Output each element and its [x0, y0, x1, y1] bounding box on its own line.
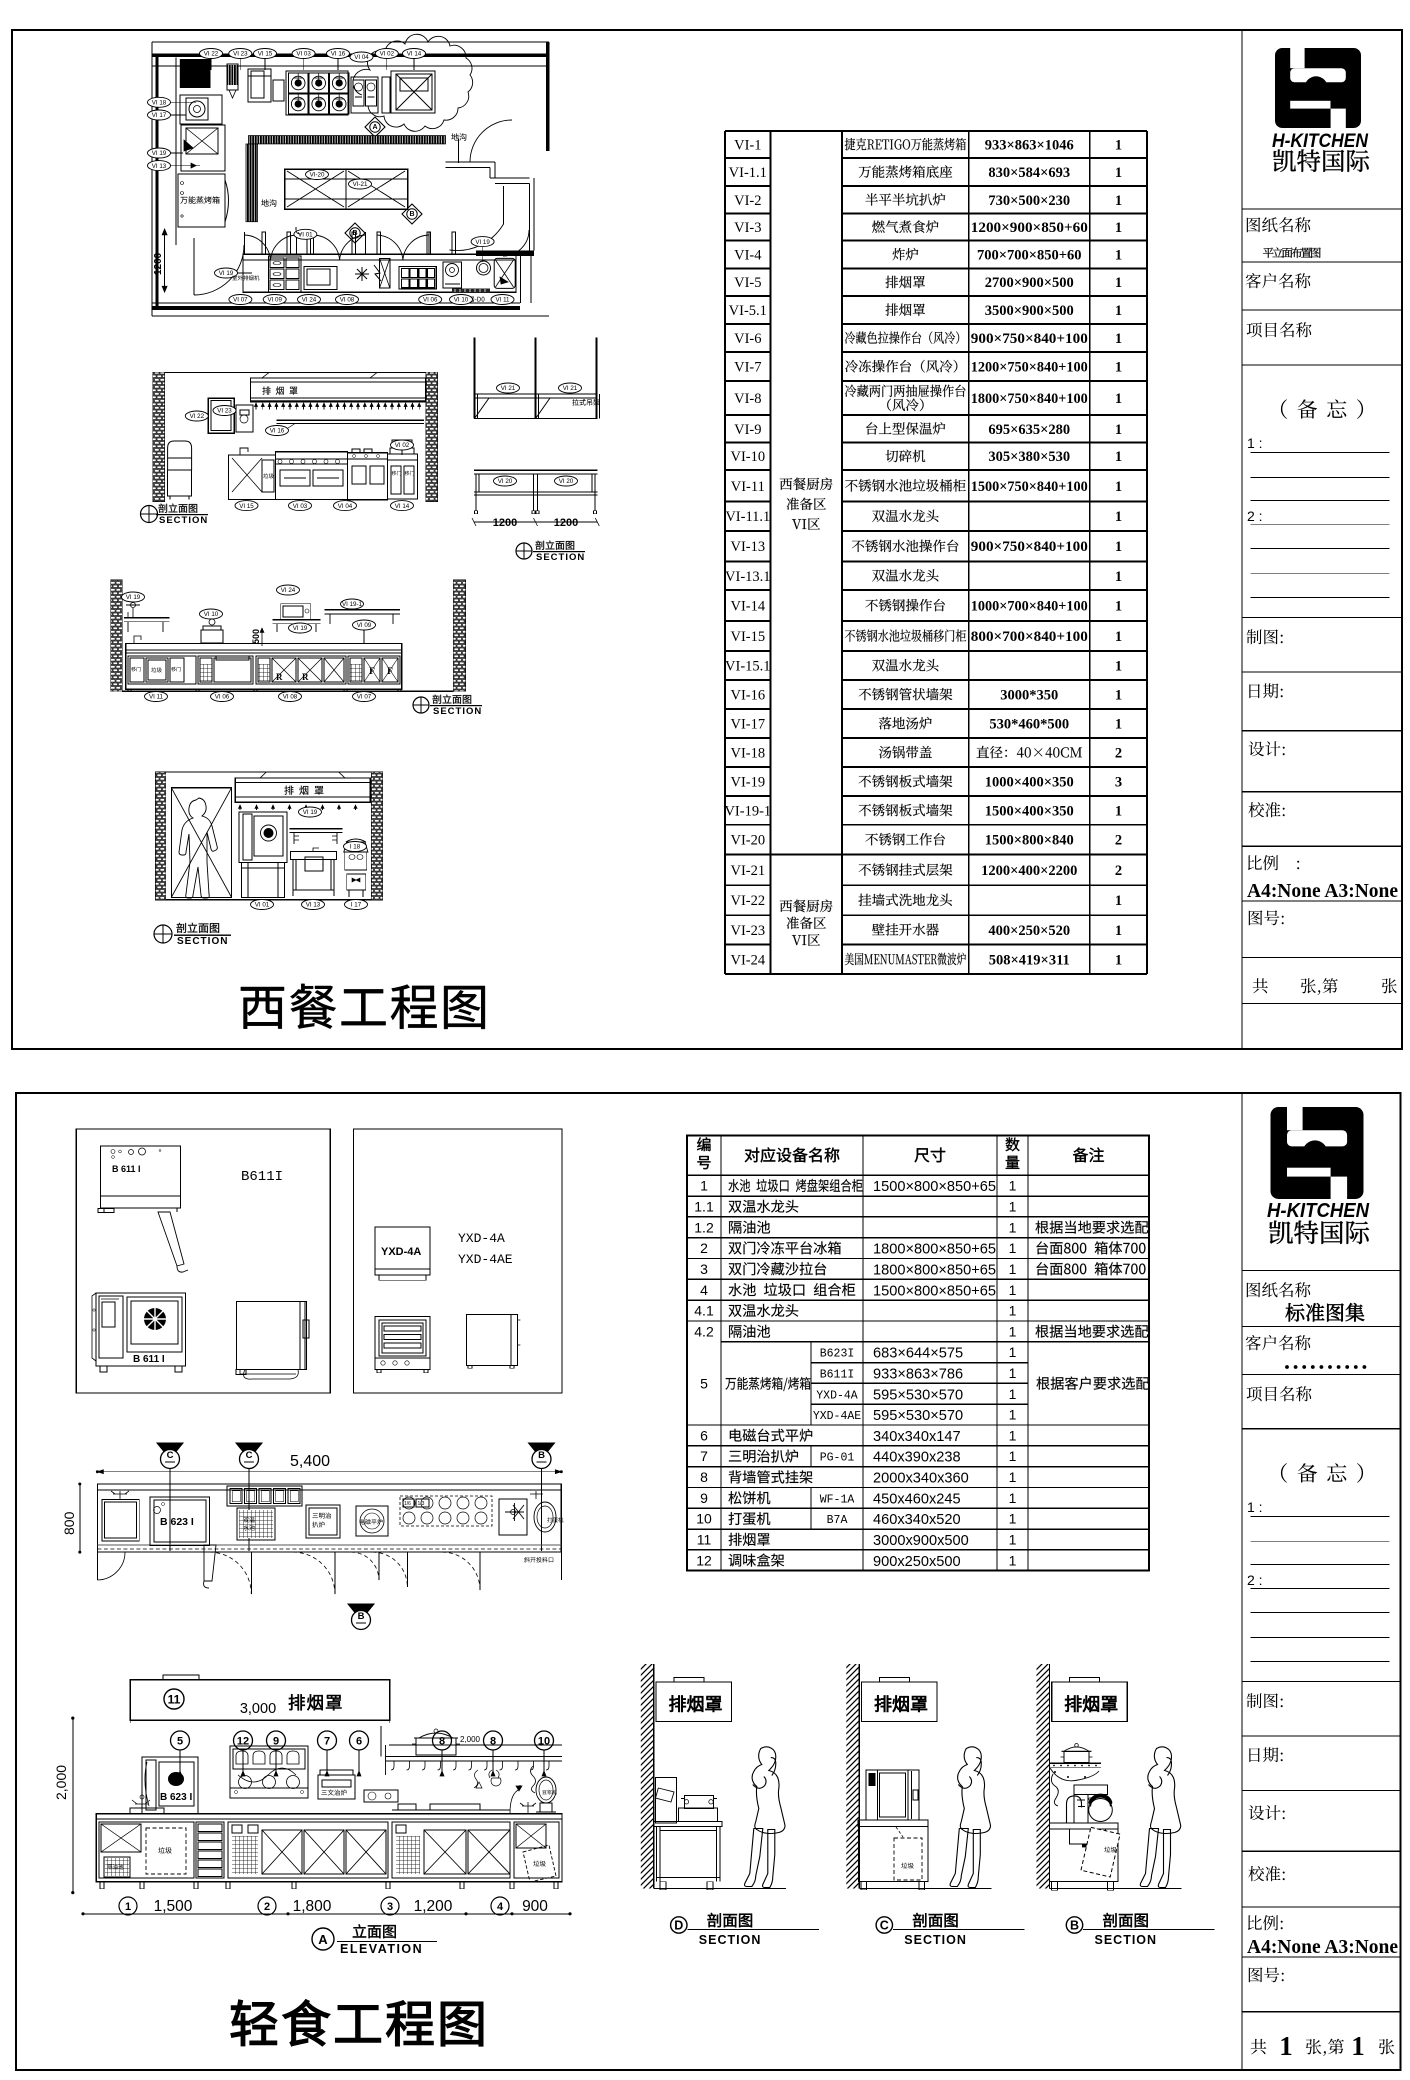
svg-text:1500×800×840: 1500×800×840	[985, 833, 1074, 849]
svg-text:VI 20: VI 20	[559, 478, 574, 485]
svg-text:VI 19: VI 19	[293, 625, 308, 632]
svg-text:VI 08: VI 08	[283, 694, 298, 701]
svg-text:VI-16: VI-16	[730, 688, 765, 704]
svg-text:VI-15.1: VI-15.1	[725, 659, 771, 675]
svg-text:VI 09: VI 09	[357, 622, 372, 629]
svg-text:1500×800×850+65: 1500×800×850+65	[873, 1179, 996, 1195]
svg-text:1: 1	[1009, 1282, 1017, 1298]
svg-text:B623I: B623I	[820, 1348, 855, 1361]
svg-text:VI-22: VI-22	[730, 893, 765, 909]
svg-text:VI 01: VI 01	[298, 232, 313, 239]
svg-text:VI 09: VI 09	[267, 297, 282, 304]
svg-text:1/6: 1/6	[404, 1501, 411, 1507]
svg-text:VI 07: VI 07	[357, 694, 372, 701]
svg-text:1: 1	[1115, 275, 1122, 291]
svg-text:700×700×850+60: 700×700×850+60	[977, 248, 1082, 264]
svg-text:4: 4	[700, 1282, 708, 1298]
svg-text:YXD-4AE: YXD-4AE	[458, 1252, 513, 1267]
svg-text:1: 1	[1009, 1344, 1017, 1360]
svg-text:3: 3	[387, 1901, 393, 1913]
svg-text:1: 1	[1009, 1490, 1017, 1506]
svg-text:VI-9: VI-9	[734, 422, 761, 438]
svg-text:D: D	[674, 1919, 683, 1933]
svg-text:4.1: 4.1	[694, 1303, 714, 1319]
svg-text:1: 1	[1009, 1552, 1017, 1568]
svg-text:VI 19: VI 19	[219, 270, 234, 277]
svg-text:VI-17: VI-17	[730, 717, 765, 733]
svg-text:2000x340x360: 2000x340x360	[873, 1471, 969, 1487]
svg-text:VI 04: VI 04	[338, 503, 353, 510]
svg-text:3: 3	[1115, 775, 1122, 791]
svg-text:3000x900x500: 3000x900x500	[873, 1533, 969, 1549]
svg-text:1200: 1200	[493, 517, 517, 529]
svg-text:440x390x238: 440x390x238	[873, 1450, 961, 1466]
svg-text:B: B	[538, 1450, 545, 1461]
svg-text:3,000: 3,000	[240, 1701, 276, 1717]
svg-text:1: 1	[1115, 331, 1122, 347]
svg-text:1: 1	[1009, 1178, 1017, 1194]
svg-text:1500×750×840+100: 1500×750×840+100	[971, 479, 1088, 495]
svg-text:VI-20: VI-20	[730, 833, 765, 849]
svg-text:2: 2	[700, 1240, 708, 1256]
svg-text:SECTION: SECTION	[159, 515, 208, 526]
svg-text:VI 24: VI 24	[281, 587, 296, 594]
svg-text:R: R	[276, 672, 283, 682]
svg-text:6: 6	[700, 1427, 708, 1443]
svg-text:1,200: 1,200	[414, 1898, 453, 1915]
svg-text:VI 01: VI 01	[255, 902, 270, 909]
svg-text:508×419×311: 508×419×311	[989, 952, 1070, 968]
svg-text:933×863×1046: 933×863×1046	[985, 138, 1074, 154]
svg-text:VI-4: VI-4	[734, 248, 762, 264]
svg-text:830×584×693: 830×584×693	[988, 165, 1070, 181]
svg-text:1: 1	[1115, 303, 1122, 319]
svg-text:VI-2: VI-2	[734, 193, 761, 209]
svg-text:B 623 I: B 623 I	[160, 1792, 192, 1803]
svg-text:5: 5	[700, 1375, 708, 1391]
svg-text:VI-21: VI-21	[730, 863, 765, 879]
svg-text:VI-11.1: VI-11.1	[725, 509, 770, 525]
svg-text:VI-7: VI-7	[734, 360, 761, 376]
svg-text:SECTION: SECTION	[699, 1933, 762, 1947]
svg-text:VI-13: VI-13	[730, 539, 765, 555]
svg-text:VI 18: VI 18	[152, 100, 167, 107]
svg-text:1: 1	[1009, 1365, 1017, 1381]
svg-text:1: 1	[1115, 659, 1122, 675]
svg-text:VI 23: VI 23	[217, 408, 232, 415]
svg-text:1: 1	[1279, 2031, 1293, 2061]
svg-text:VI 19-1: VI 19-1	[342, 601, 363, 608]
svg-text:VI 10: VI 10	[454, 297, 469, 304]
svg-text:VI-10: VI-10	[730, 449, 765, 465]
svg-text:1: 1	[1009, 1303, 1017, 1319]
svg-text:VI-19-1: VI-19-1	[724, 803, 771, 819]
svg-text:H-KITCHEN: H-KITCHEN	[1272, 131, 1369, 152]
svg-text:530*460*500: 530*460*500	[989, 717, 1069, 733]
svg-text:SECTION: SECTION	[904, 1933, 967, 1947]
svg-text:695×635×280: 695×635×280	[988, 422, 1070, 438]
svg-text:VI-24: VI-24	[730, 952, 765, 968]
svg-text:2: 2	[1115, 863, 1122, 879]
svg-text:1200×900×850+60: 1200×900×850+60	[971, 220, 1088, 236]
svg-text:1: 1	[1115, 599, 1122, 615]
svg-text:1: 1	[1115, 360, 1122, 376]
svg-text:A: A	[372, 124, 377, 131]
svg-text:VI-19: VI-19	[730, 775, 765, 791]
svg-text:1,800: 1,800	[293, 1898, 332, 1915]
svg-text:VI 07: VI 07	[233, 297, 248, 304]
svg-text:1000×400×350: 1000×400×350	[985, 775, 1074, 791]
svg-text:1: 1	[1115, 509, 1122, 525]
svg-text:5: 5	[177, 1736, 183, 1748]
svg-text:595×530×570: 595×530×570	[873, 1408, 963, 1424]
svg-text:VI 14: VI 14	[407, 51, 422, 58]
svg-text:VI 22: VI 22	[204, 51, 219, 58]
svg-text:1: 1	[1115, 391, 1122, 407]
svg-text:VI 10: VI 10	[204, 611, 219, 618]
svg-text:1200: 1200	[554, 517, 578, 529]
svg-text:F: F	[369, 667, 375, 677]
svg-text:B 623 I: B 623 I	[160, 1516, 194, 1528]
svg-text:VI 13: VI 13	[306, 902, 321, 909]
svg-text:1000×700×840+100: 1000×700×840+100	[971, 599, 1088, 615]
svg-text:7: 7	[700, 1448, 708, 1464]
svg-text:VI-8: VI-8	[734, 391, 761, 407]
svg-text:1200×750×840+100: 1200×750×840+100	[971, 360, 1088, 376]
svg-text:1: 1	[1115, 479, 1122, 495]
svg-text:ELEVATION: ELEVATION	[340, 1942, 423, 1956]
svg-text:VI 23: VI 23	[233, 51, 248, 58]
svg-text:11: 11	[697, 1532, 712, 1548]
svg-text:VI 03: VI 03	[293, 503, 308, 510]
svg-text:B611I: B611I	[241, 1169, 283, 1185]
svg-text:VI-14: VI-14	[730, 599, 765, 615]
svg-text:8: 8	[490, 1736, 496, 1748]
svg-text:3000*350: 3000*350	[1000, 688, 1058, 704]
svg-text:SECTION: SECTION	[536, 552, 585, 563]
svg-text:YXD-4A: YXD-4A	[381, 1246, 421, 1258]
svg-text:1: 1	[1115, 193, 1122, 209]
svg-text:C: C	[246, 1450, 253, 1461]
svg-text:1: 1	[1009, 1240, 1017, 1256]
svg-text:1500×400×350: 1500×400×350	[985, 803, 1074, 819]
svg-text:VI-13.1: VI-13.1	[725, 569, 771, 585]
svg-text:1/3: 1/3	[418, 1501, 425, 1507]
svg-text:1.2: 1.2	[694, 1219, 714, 1235]
svg-text:VI-21: VI-21	[353, 181, 368, 188]
svg-text:I 17: I 17	[351, 902, 362, 909]
svg-text:2: 2	[1115, 746, 1122, 762]
svg-text:1: 1	[1009, 1323, 1017, 1339]
svg-text:1: 1	[1009, 1386, 1017, 1402]
svg-text:VI 19: VI 19	[475, 239, 490, 246]
svg-text:500: 500	[251, 629, 261, 644]
svg-text:1: 1	[1009, 1219, 1017, 1235]
svg-text:PG-01: PG-01	[820, 1452, 855, 1465]
svg-text:SECTION: SECTION	[177, 936, 228, 947]
svg-text:VI-3: VI-3	[734, 220, 761, 236]
svg-text:1,500: 1,500	[154, 1898, 193, 1915]
svg-text:1: 1	[125, 1901, 131, 1913]
svg-text:2 :: 2 :	[1247, 508, 1263, 524]
svg-text:4.2: 4.2	[694, 1323, 714, 1339]
svg-text:1: 1	[1351, 2031, 1365, 2061]
svg-text:1: 1	[1115, 449, 1122, 465]
svg-text:1: 1	[1009, 1511, 1017, 1527]
svg-text:VI 06: VI 06	[215, 694, 230, 701]
svg-text:SECTION: SECTION	[1095, 1933, 1158, 1947]
svg-text:1200×400×2200: 1200×400×2200	[981, 863, 1077, 879]
svg-text:VI-11: VI-11	[731, 479, 765, 495]
svg-text:VI 19: VI 19	[303, 809, 318, 816]
svg-text:R: R	[302, 672, 309, 682]
svg-text:VI-1: VI-1	[734, 138, 761, 154]
svg-text:1: 1	[1115, 569, 1122, 585]
svg-text:10: 10	[538, 1736, 550, 1748]
svg-text:4: 4	[497, 1901, 504, 1913]
svg-text:VI 11: VI 11	[149, 694, 164, 701]
svg-text:2700×900×500: 2700×900×500	[985, 275, 1074, 291]
svg-text:VI 14: VI 14	[395, 503, 410, 510]
svg-text:VI-5.1: VI-5.1	[729, 303, 767, 319]
svg-text:VI 24: VI 24	[302, 297, 317, 304]
svg-text:VI 03: VI 03	[296, 51, 311, 58]
svg-text:C: C	[880, 1919, 889, 1933]
svg-text:2 :: 2 :	[1247, 1572, 1263, 1588]
svg-text:10: 10	[696, 1511, 712, 1527]
svg-text:1: 1	[1115, 688, 1122, 704]
svg-text:460x340x520: 460x340x520	[873, 1512, 961, 1528]
svg-text:VI 20: VI 20	[498, 478, 513, 485]
svg-text:VI 11: VI 11	[496, 297, 511, 304]
svg-text:900×750×840+100: 900×750×840+100	[971, 331, 1088, 347]
svg-text:B: B	[358, 1611, 365, 1622]
svg-text:VI-18: VI-18	[730, 746, 765, 762]
svg-text:12: 12	[696, 1552, 712, 1568]
svg-text:B611I: B611I	[820, 1369, 855, 1382]
svg-text:1: 1	[1115, 138, 1122, 154]
svg-text:730×500×230: 730×500×230	[988, 193, 1070, 209]
svg-text:B 611 I: B 611 I	[133, 1354, 165, 1365]
svg-text:1: 1	[1115, 803, 1122, 819]
svg-text:800×700×840+100: 800×700×840+100	[971, 629, 1088, 645]
svg-text:VI-5: VI-5	[734, 275, 761, 291]
svg-text:VI 08: VI 08	[340, 297, 355, 304]
svg-text:VI 17: VI 17	[152, 112, 167, 119]
svg-text:933×863×786: 933×863×786	[873, 1367, 963, 1383]
svg-text:1800×800×850+65: 1800×800×850+65	[873, 1262, 996, 1278]
svg-text:900: 900	[522, 1898, 548, 1915]
svg-text:VI 13: VI 13	[152, 163, 167, 170]
svg-text:8: 8	[439, 1736, 445, 1748]
svg-text:11: 11	[168, 1693, 181, 1707]
svg-text:7: 7	[324, 1736, 330, 1748]
svg-text:YXD-4A: YXD-4A	[458, 1231, 505, 1246]
svg-text:I 18: I 18	[350, 844, 361, 851]
svg-text:B7A: B7A	[827, 1514, 848, 1527]
svg-text:3500×900×500: 3500×900×500	[985, 303, 1074, 319]
svg-text:1: 1	[1115, 165, 1122, 181]
svg-text:VI 19: VI 19	[152, 150, 167, 157]
svg-text:VI 16: VI 16	[270, 428, 285, 435]
svg-text:A4:None A3:None: A4:None A3:None	[1247, 880, 1398, 902]
svg-text:900x250x500: 900x250x500	[873, 1554, 961, 1570]
svg-text:1: 1	[1115, 923, 1122, 939]
svg-text:450x460x245: 450x460x245	[873, 1491, 961, 1507]
svg-text:400×250×520: 400×250×520	[988, 923, 1070, 939]
svg-text:1: 1	[1115, 539, 1122, 555]
svg-text:SECTION: SECTION	[433, 706, 482, 717]
svg-text:1: 1	[1009, 1532, 1017, 1548]
svg-text:VI-23: VI-23	[730, 923, 765, 939]
svg-text:1: 1	[1115, 220, 1122, 236]
svg-text:VI-20: VI-20	[310, 172, 325, 179]
svg-text:VI 15: VI 15	[258, 51, 273, 58]
svg-text:6: 6	[356, 1736, 362, 1748]
svg-text:1: 1	[1009, 1448, 1017, 1464]
svg-text:1 :: 1 :	[1247, 435, 1263, 451]
svg-text:1800×800×850+65: 1800×800×850+65	[873, 1242, 996, 1258]
svg-text:F: F	[387, 667, 393, 677]
svg-text:1 :: 1 :	[1247, 1499, 1263, 1515]
svg-text:340x340x147: 340x340x147	[873, 1429, 961, 1445]
svg-text:1: 1	[1115, 248, 1122, 264]
svg-text:B: B	[1070, 1919, 1079, 1933]
svg-text:1: 1	[1115, 952, 1122, 968]
svg-text:VI 19: VI 19	[126, 594, 141, 601]
svg-text:VI 16: VI 16	[331, 51, 346, 58]
svg-text:1800×750×840+100: 1800×750×840+100	[971, 391, 1088, 407]
svg-text:C: C	[167, 1450, 174, 1461]
svg-text:1200: 1200	[153, 252, 164, 275]
svg-text:683×644×575: 683×644×575	[873, 1346, 963, 1362]
svg-text:H-KITCHEN: H-KITCHEN	[1267, 1200, 1370, 1222]
svg-text:1: 1	[1115, 717, 1122, 733]
svg-text:900×750×840+100: 900×750×840+100	[971, 539, 1088, 555]
svg-text:1: 1	[1115, 893, 1122, 909]
svg-text:9: 9	[700, 1490, 708, 1506]
svg-text:1: 1	[1009, 1261, 1017, 1277]
svg-text:1.1: 1.1	[694, 1199, 714, 1215]
svg-text:VI 02: VI 02	[380, 51, 395, 58]
svg-text:1: 1	[1009, 1407, 1017, 1423]
svg-text:595×530×570: 595×530×570	[873, 1387, 963, 1403]
svg-text:VI-15: VI-15	[730, 629, 765, 645]
svg-text:305×380×530: 305×380×530	[988, 449, 1070, 465]
svg-text:3: 3	[700, 1261, 708, 1277]
svg-text:YXD-4A: YXD-4A	[816, 1389, 858, 1402]
svg-text:5,400: 5,400	[290, 1453, 330, 1470]
svg-text:8: 8	[700, 1469, 708, 1485]
svg-text:YXD-4AE: YXD-4AE	[813, 1410, 861, 1423]
svg-text:2: 2	[264, 1901, 270, 1913]
svg-text:2,000: 2,000	[53, 1765, 69, 1800]
svg-text:VI 04: VI 04	[354, 54, 369, 61]
svg-text:2: 2	[1115, 833, 1122, 849]
svg-text:VI 02: VI 02	[395, 442, 410, 449]
svg-text:1: 1	[1009, 1427, 1017, 1443]
svg-text:VI-1.1: VI-1.1	[729, 165, 767, 181]
svg-text:1: 1	[1009, 1199, 1017, 1215]
svg-text:VI 21: VI 21	[501, 385, 516, 392]
svg-text:A4:None A3:None: A4:None A3:None	[1247, 1936, 1398, 1958]
svg-text:1500×800×850+65: 1500×800×850+65	[873, 1283, 996, 1299]
svg-text:1: 1	[700, 1178, 708, 1194]
svg-text:B 611 I: B 611 I	[112, 1164, 141, 1174]
svg-text:800: 800	[61, 1511, 77, 1535]
svg-text:1: 1	[1009, 1469, 1017, 1485]
svg-text:VI 21: VI 21	[563, 385, 578, 392]
svg-text:1: 1	[1115, 422, 1122, 438]
svg-text:2,000: 2,000	[460, 1735, 481, 1744]
svg-text:VI 22: VI 22	[190, 413, 205, 420]
svg-text:VI 06: VI 06	[423, 297, 438, 304]
svg-text:1: 1	[1115, 629, 1122, 645]
svg-text:VI 15: VI 15	[239, 503, 254, 510]
svg-text:B: B	[352, 230, 357, 237]
svg-text:A: A	[318, 1932, 328, 1947]
svg-text:VI-6: VI-6	[734, 331, 761, 347]
svg-text:WF-1A: WF-1A	[820, 1493, 855, 1506]
svg-text:B: B	[409, 211, 414, 218]
